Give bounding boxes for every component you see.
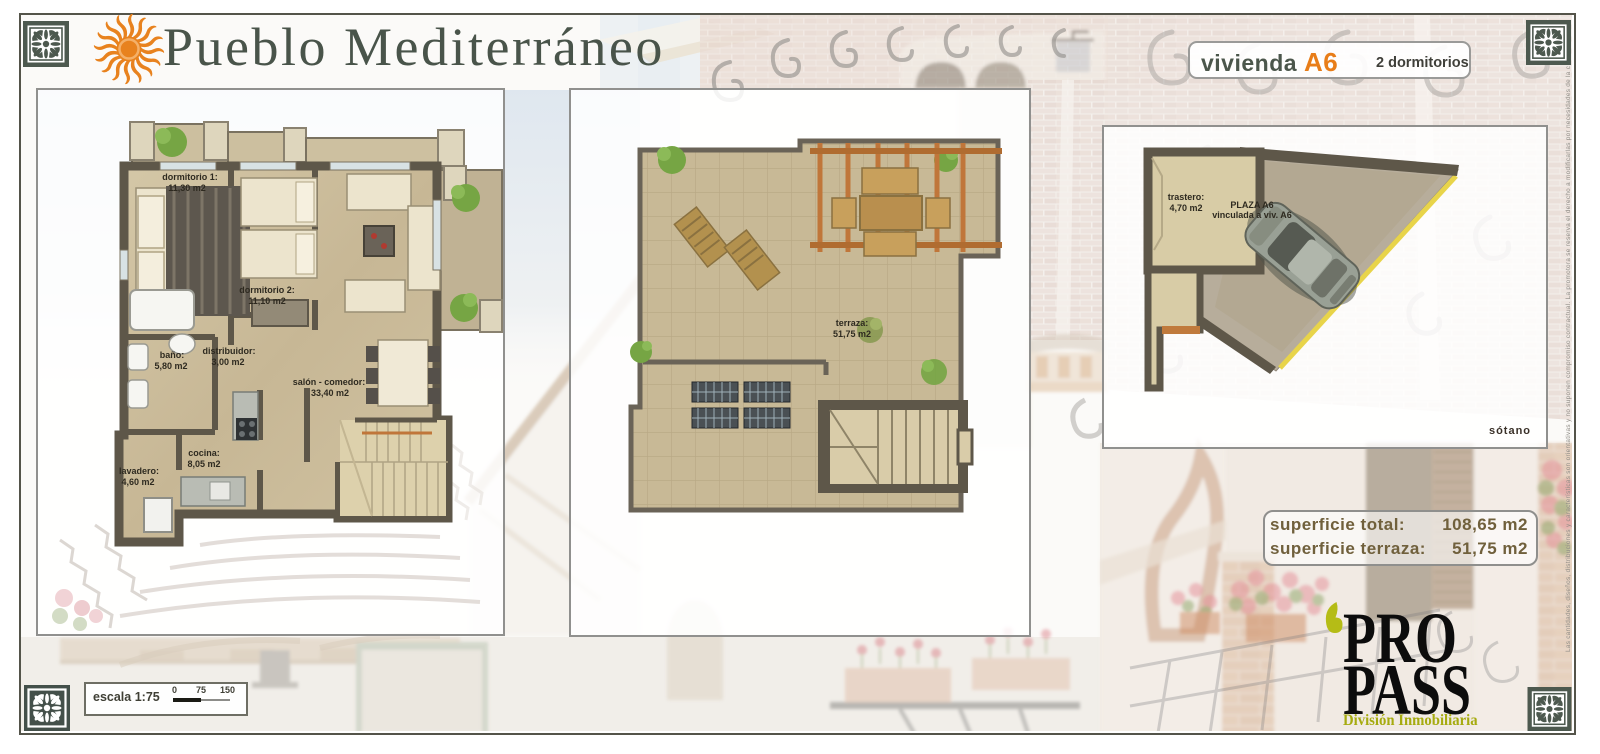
svg-text:PLAZA A6: PLAZA A6: [1230, 200, 1273, 210]
svg-text:3,00 m2: 3,00 m2: [211, 357, 244, 367]
svg-text:sótano: sótano: [1489, 425, 1531, 437]
svg-text:4,70 m2: 4,70 m2: [1169, 203, 1202, 213]
svg-text:150: 150: [220, 685, 235, 695]
svg-text:75: 75: [196, 685, 206, 695]
svg-text:trastero:: trastero:: [1168, 192, 1205, 202]
svg-text:terraza:: terraza:: [836, 318, 869, 328]
svg-text:vinculada a viv. A6: vinculada a viv. A6: [1212, 210, 1292, 220]
svg-text:dormitorio 2:: dormitorio 2:: [239, 285, 295, 295]
svg-text:baño:: baño:: [160, 350, 185, 360]
svg-text:8,05 m2: 8,05 m2: [187, 459, 220, 469]
svg-text:0: 0: [172, 685, 177, 695]
svg-text:cocina:: cocina:: [188, 448, 220, 458]
svg-text:dormitorio 1:: dormitorio 1:: [162, 172, 218, 182]
svg-text:4,60 m2: 4,60 m2: [121, 477, 154, 487]
svg-text:11,10 m2: 11,10 m2: [248, 296, 286, 306]
svg-text:11,30 m2: 11,30 m2: [168, 183, 206, 193]
svg-text:51,75 m2: 51,75 m2: [833, 329, 871, 339]
svg-text:distribuidor:: distribuidor:: [203, 346, 256, 356]
svg-text:33,40 m2: 33,40 m2: [311, 388, 349, 398]
svg-text:lavadero:: lavadero:: [119, 466, 159, 476]
svg-text:salón - comedor:: salón - comedor:: [293, 377, 366, 387]
svg-text:5,80 m2: 5,80 m2: [154, 361, 187, 371]
